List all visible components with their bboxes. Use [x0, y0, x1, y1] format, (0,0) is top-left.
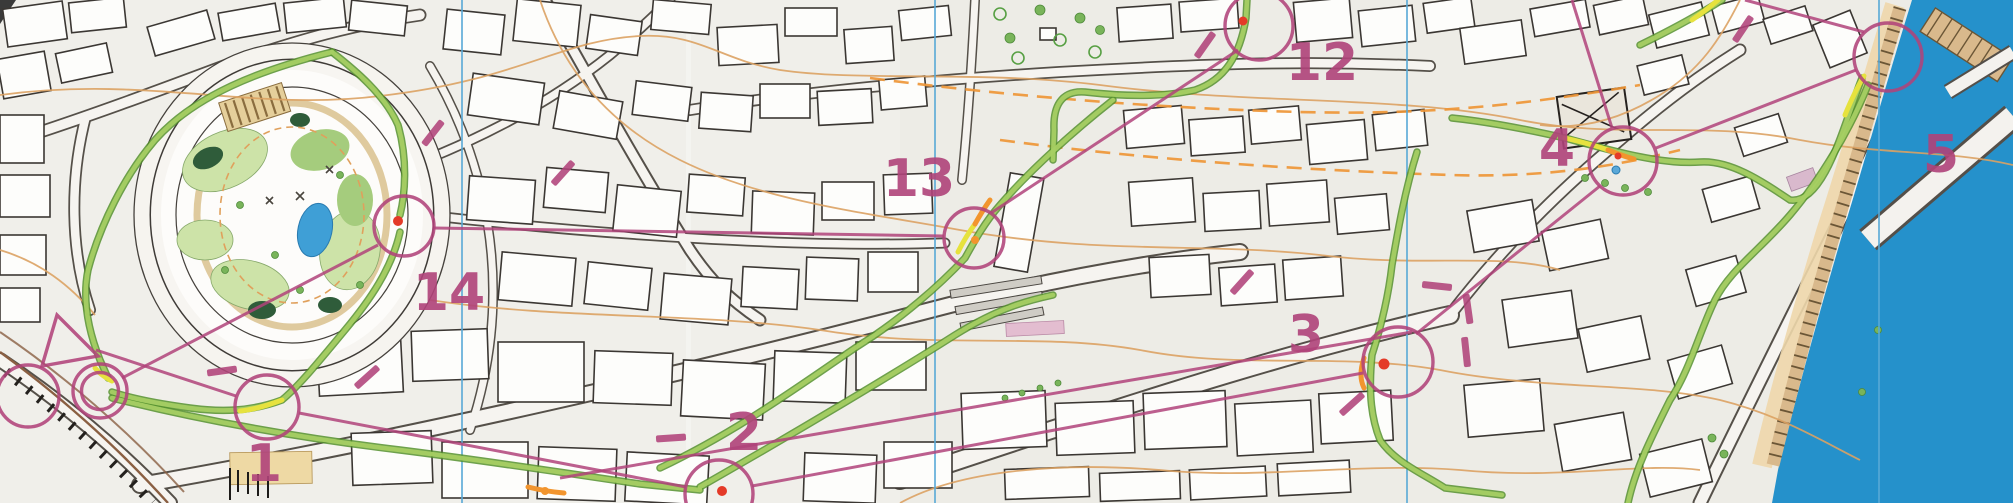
building-blocks	[717, 24, 779, 65]
building-blocks	[1464, 379, 1544, 437]
building-blocks	[349, 0, 408, 36]
building-blocks	[443, 9, 505, 55]
building-blocks	[467, 176, 536, 224]
building-blocks	[0, 288, 40, 322]
control-number-2: 2	[726, 403, 762, 463]
plaza-trees	[1005, 33, 1015, 43]
boulevard-trees	[1019, 390, 1025, 396]
boulevard-trees	[1582, 175, 1589, 182]
building-blocks	[751, 191, 814, 235]
building-blocks	[1460, 20, 1526, 64]
building-blocks	[1189, 116, 1245, 156]
boulevard-trees	[1037, 385, 1043, 391]
city-park	[337, 174, 373, 226]
building-blocks	[687, 174, 746, 216]
control-number-12: 12	[1286, 33, 1358, 93]
plaza-trees	[1096, 26, 1105, 35]
building-blocks	[586, 15, 642, 56]
plaza-trees	[1035, 5, 1045, 15]
plaza-trees	[1075, 13, 1085, 23]
building-blocks	[803, 453, 877, 503]
building-blocks	[1267, 180, 1330, 226]
building-blocks	[1283, 256, 1344, 300]
building-blocks	[1372, 109, 1427, 150]
building-blocks	[0, 235, 46, 275]
gps-stop-marks	[717, 486, 727, 496]
building-blocks	[1117, 4, 1173, 42]
building-blocks	[785, 8, 837, 36]
building-blocks	[1235, 400, 1314, 456]
city-park	[290, 113, 310, 127]
control-number-4: 4	[1539, 119, 1575, 179]
boulevard-trees	[1622, 185, 1629, 192]
boulevard-trees	[1602, 180, 1609, 187]
building-blocks	[844, 26, 894, 63]
gps-stop-marks	[541, 487, 549, 495]
gps-stop-marks	[1615, 153, 1622, 160]
building-blocks	[1149, 254, 1211, 297]
gps-stop-marks	[393, 216, 403, 226]
building-blocks	[498, 252, 576, 306]
control-number-3: 3	[1288, 305, 1324, 365]
control-number-1: 1	[246, 434, 282, 494]
control-number-13: 13	[883, 149, 955, 209]
park-trees	[337, 172, 344, 179]
control-number-5: 5	[1923, 125, 1959, 185]
building-blocks	[1123, 106, 1184, 149]
building-blocks	[856, 342, 926, 390]
building-blocks	[899, 5, 952, 40]
building-blocks	[1129, 178, 1196, 226]
park-trees	[357, 282, 364, 289]
orienteering-map[interactable]: 1 2 3 4 5 12 13 14	[0, 0, 2013, 503]
building-blocks	[593, 351, 673, 406]
park-trees	[237, 202, 244, 209]
boulevard-trees	[1645, 189, 1652, 196]
building-blocks	[1100, 471, 1181, 502]
building-blocks	[284, 0, 347, 33]
building-blocks	[498, 342, 584, 402]
building-blocks	[584, 262, 652, 310]
city-park	[318, 297, 342, 313]
harbor-water	[1859, 389, 1866, 396]
building-blocks	[632, 81, 692, 122]
building-blocks	[1502, 290, 1578, 347]
building-blocks	[884, 442, 952, 488]
building-blocks	[805, 257, 858, 301]
building-blocks	[760, 84, 810, 118]
park-trees	[272, 252, 279, 259]
gps-stop-marks	[1379, 359, 1390, 370]
pink-building	[1006, 320, 1065, 336]
park-trees	[222, 267, 229, 274]
building-blocks	[0, 175, 50, 217]
gps-stop-marks	[1239, 17, 1248, 26]
city-park	[177, 220, 233, 260]
boulevard-trees	[1720, 450, 1728, 458]
building-blocks	[1306, 120, 1367, 165]
building-blocks	[1189, 466, 1266, 500]
building-blocks	[1203, 191, 1261, 232]
gps-stop-marks	[971, 236, 979, 244]
building-blocks	[513, 0, 581, 47]
building-blocks	[69, 0, 127, 33]
building-blocks	[1335, 194, 1390, 234]
building-blocks	[351, 431, 433, 486]
building-blocks	[3, 1, 68, 47]
building-blocks	[467, 73, 544, 125]
building-blocks	[1179, 0, 1239, 32]
building-blocks	[699, 92, 753, 132]
building-blocks	[0, 115, 44, 163]
building-blocks	[651, 0, 711, 34]
boulevard-trees	[1055, 380, 1061, 386]
building-blocks	[442, 442, 528, 498]
building-blocks	[1277, 460, 1351, 496]
building-blocks	[613, 185, 681, 237]
building-blocks	[817, 89, 873, 126]
fountain-dot	[1612, 166, 1620, 174]
building-blocks	[411, 329, 489, 382]
control-number-14: 14	[413, 263, 485, 323]
building-blocks	[543, 167, 608, 212]
boulevard-trees	[1708, 434, 1716, 442]
building-blocks	[741, 267, 799, 310]
building-blocks	[868, 252, 918, 292]
